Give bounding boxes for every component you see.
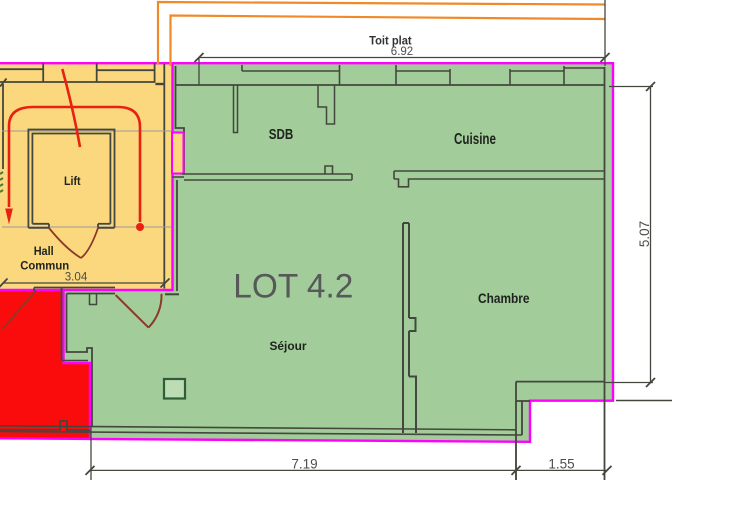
svg-text:5.07: 5.07 <box>637 221 652 247</box>
svg-text:Commun: Commun <box>20 259 69 272</box>
svg-text:1.55: 1.55 <box>548 457 574 472</box>
svg-text:SDB: SDB <box>269 127 294 143</box>
svg-text:Séjour: Séjour <box>270 339 307 353</box>
svg-text:LOT 4.2: LOT 4.2 <box>233 267 353 305</box>
svg-text:Hall: Hall <box>34 244 54 258</box>
svg-text:3.04: 3.04 <box>65 270 88 283</box>
svg-text:6.92: 6.92 <box>391 46 413 58</box>
svg-text:Chambre: Chambre <box>478 290 530 306</box>
svg-text:Lift: Lift <box>64 174 81 188</box>
svg-text:Cuisine: Cuisine <box>454 131 496 148</box>
svg-text:7.19: 7.19 <box>291 456 317 471</box>
